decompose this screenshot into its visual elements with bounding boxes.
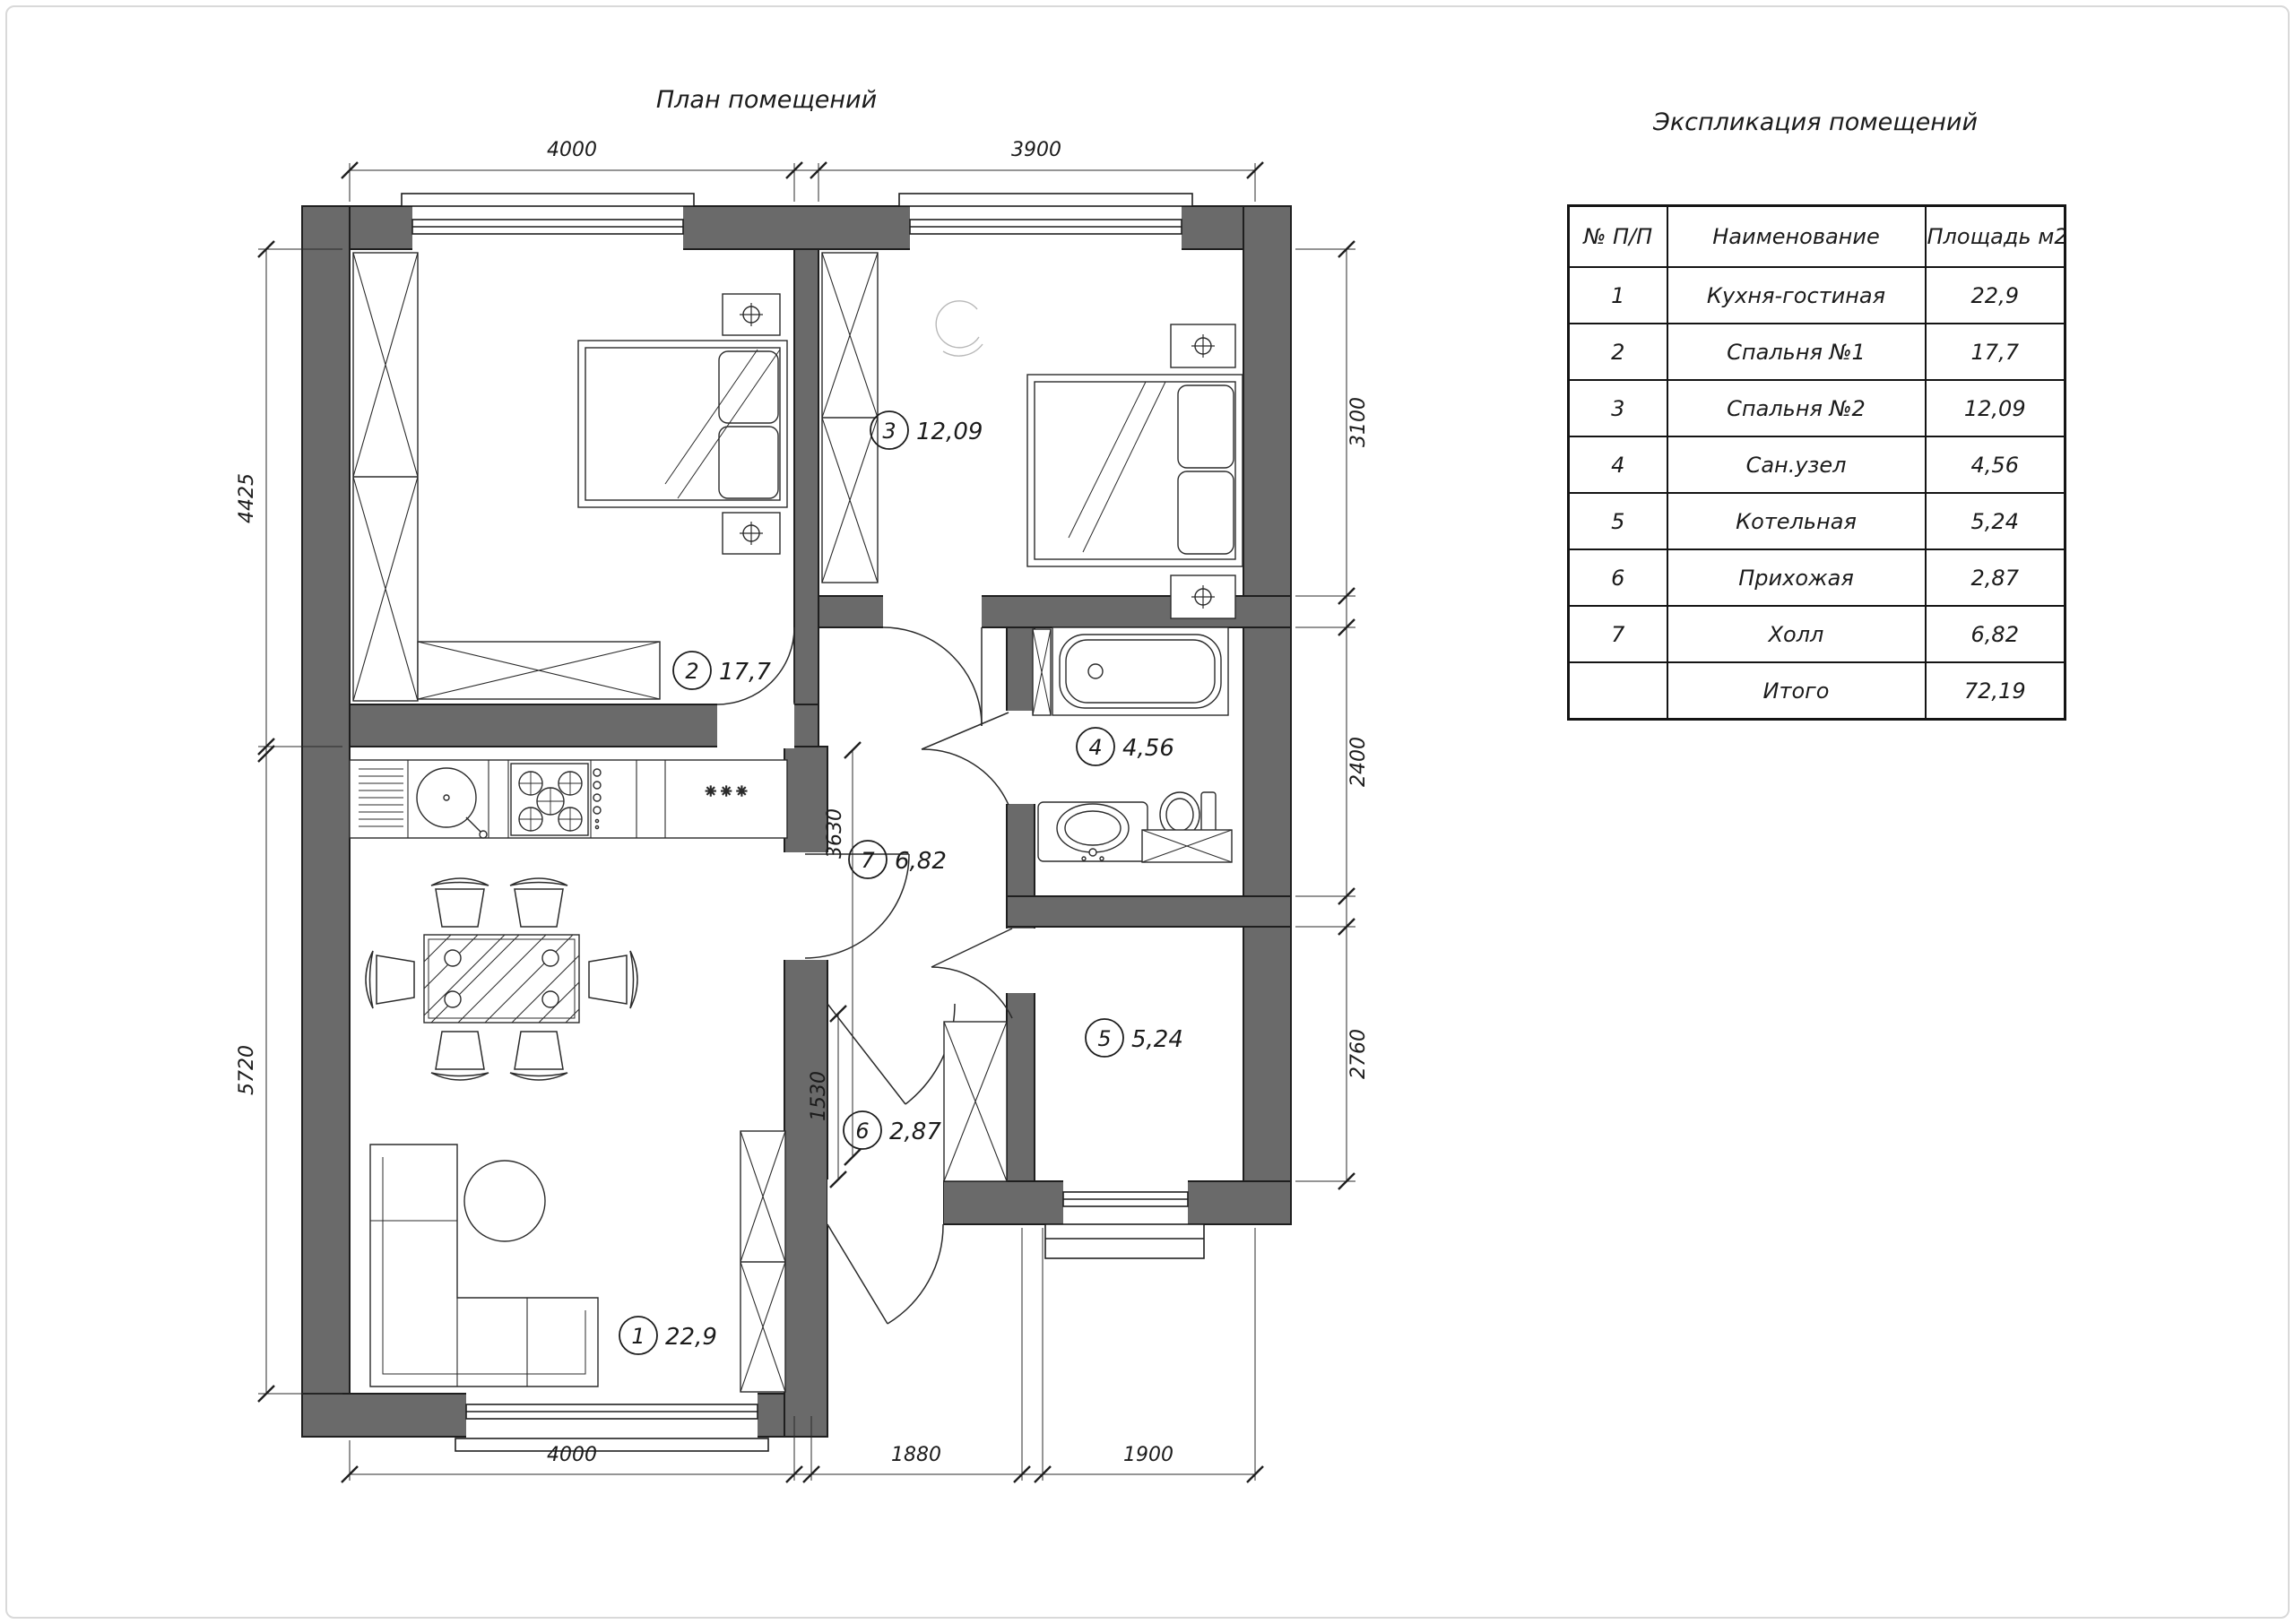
cell-name: Кухня-гостиная	[1667, 267, 1926, 324]
door-bathroom	[922, 713, 1009, 805]
cell-name: Итого	[1667, 662, 1926, 720]
cell-name: Сан.узел	[1667, 436, 1926, 493]
door-entrance	[827, 1224, 943, 1324]
cell-area: 12,09	[1926, 380, 2065, 436]
plan-title: План помещений	[656, 86, 877, 114]
room-area: 22,9	[665, 1324, 717, 1351]
kitchen-counter: ✳ ✳ ✳	[350, 760, 787, 838]
chair	[366, 951, 414, 1008]
room-number: 5	[1097, 1026, 1111, 1051]
cell-number: 6	[1569, 549, 1667, 606]
room-label-6: 6 2,87	[844, 1111, 941, 1149]
table-header-row: № П/П Наименование Площадь м2	[1569, 206, 2065, 268]
room-label-7: 7 6,82	[849, 841, 947, 878]
cell-number: 2	[1569, 324, 1667, 380]
dim-label: 3900	[1011, 139, 1061, 161]
room-label-3: 3 12,09	[870, 411, 983, 449]
dim-label: 1880	[891, 1444, 941, 1466]
room-number: 1	[631, 1324, 645, 1349]
room-area: 12,09	[916, 419, 983, 445]
floor-plan-sheet: План помещений Экспликация помещений	[0, 0, 2295, 1624]
dim-inner-hall	[844, 742, 861, 1165]
living-wardrobe	[740, 1131, 785, 1392]
room-label-1: 1 22,9	[619, 1317, 717, 1354]
wardrobe	[944, 1022, 1007, 1181]
dresser	[418, 642, 660, 699]
door-boiler	[931, 929, 1012, 1018]
chair	[510, 1032, 567, 1080]
window-boiler	[1063, 1192, 1188, 1206]
wall-right	[1243, 206, 1291, 1224]
washing-area-mat	[1142, 830, 1232, 862]
dim-label: 2760	[1347, 1029, 1370, 1079]
cell-name: Спальня №1	[1667, 324, 1926, 380]
bedroom1-furniture	[353, 253, 787, 701]
dim-label: 4425	[236, 473, 258, 523]
room-label-5: 5 5,24	[1086, 1019, 1183, 1057]
table-row: 6 Прихожая 2,87	[1569, 549, 2065, 606]
stove	[511, 764, 601, 835]
table-row: 1 Кухня-гостиная 22,9	[1569, 267, 2065, 324]
cell-area: 6,82	[1926, 606, 2065, 662]
wall-left	[302, 206, 350, 1437]
chair	[510, 878, 567, 927]
room-number: 4	[1088, 735, 1102, 760]
room-number: 3	[882, 419, 896, 444]
dim-label: 5720	[236, 1045, 258, 1095]
bed	[578, 341, 787, 507]
table-row: 3 Спальня №2 12,09	[1569, 380, 2065, 436]
cell-area: 17,7	[1926, 324, 2065, 380]
cell-name: Спальня №2	[1667, 380, 1926, 436]
porch-step	[1045, 1224, 1204, 1258]
dim-inner-entry	[830, 1006, 846, 1188]
dim-label: 4000	[547, 139, 597, 161]
bathtub	[1052, 627, 1228, 715]
col-header-name: Наименование	[1667, 206, 1926, 268]
wardrobe	[353, 253, 418, 701]
room-number: 7	[861, 848, 875, 873]
cell-name: Котельная	[1667, 493, 1926, 549]
dim-label: 3100	[1347, 397, 1370, 447]
explication-title: Экспликация помещений	[1652, 108, 1978, 136]
room-area: 17,7	[719, 659, 771, 686]
cell-area: 2,87	[1926, 549, 2065, 606]
dining-table	[424, 935, 579, 1023]
wardrobe	[822, 253, 878, 583]
room-number: 6	[855, 1119, 869, 1144]
room-area: 5,24	[1131, 1026, 1183, 1053]
cell-number: 3	[1569, 380, 1667, 436]
dim-label: 3630	[824, 808, 846, 859]
freezer-symbol: ✳ ✳ ✳	[705, 783, 747, 799]
col-header-area: Площадь м2	[1926, 206, 2065, 268]
entry-furniture	[944, 1022, 1007, 1181]
explication-table: № П/П Наименование Площадь м2 1 Кухня-го…	[1567, 204, 2064, 721]
table-row: 2 Спальня №1 17,7	[1569, 324, 2065, 380]
ceiling-light-icon	[936, 301, 983, 356]
chair	[431, 878, 489, 927]
dim-label: 1900	[1123, 1444, 1173, 1466]
cell-number: 1	[1569, 267, 1667, 324]
cell-name: Прихожая	[1667, 549, 1926, 606]
cell-number: 7	[1569, 606, 1667, 662]
wall-hall-left-top	[784, 747, 827, 854]
washbasin	[1038, 802, 1147, 861]
dim-right	[1295, 241, 1355, 1189]
cell-area: 4,56	[1926, 436, 2065, 493]
room-label-4: 4 4,56	[1077, 728, 1174, 765]
door-bedroom2	[883, 627, 982, 726]
coffee-table	[464, 1161, 545, 1241]
chair	[431, 1032, 489, 1080]
wall-bath-bottom	[1007, 896, 1291, 927]
dim-label: 4000	[547, 1444, 597, 1466]
cell-area: 72,19	[1926, 662, 2065, 720]
kitchen-living-furniture: ✳ ✳ ✳	[350, 760, 787, 1392]
wall-hall-left-bottom	[784, 958, 827, 1437]
cell-area: 22,9	[1926, 267, 2065, 324]
cell-number: 4	[1569, 436, 1667, 493]
table-row-total: Итого 72,19	[1569, 662, 2065, 720]
room-area: 4,56	[1122, 735, 1174, 762]
room-number: 2	[685, 659, 698, 684]
room-area: 6,82	[895, 848, 947, 875]
table-row: 4 Сан.узел 4,56	[1569, 436, 2065, 493]
bath-cabinet	[1033, 629, 1051, 715]
dim-label: 2400	[1347, 737, 1370, 787]
chair	[589, 951, 637, 1008]
table-row: 5 Котельная 5,24	[1569, 493, 2065, 549]
table-row: 7 Холл 6,82	[1569, 606, 2065, 662]
col-header-number: № П/П	[1569, 206, 1667, 268]
cell-number	[1569, 662, 1667, 720]
cell-name: Холл	[1667, 606, 1926, 662]
bed	[1027, 375, 1243, 566]
door-hall-entryroom	[827, 1004, 955, 1104]
room-area: 2,87	[889, 1119, 941, 1145]
cell-area: 5,24	[1926, 493, 2065, 549]
wall-bedrooms-divider	[794, 249, 818, 704]
dim-label: 1530	[808, 1071, 830, 1121]
cell-number: 5	[1569, 493, 1667, 549]
room-label-2: 2 17,7	[673, 652, 771, 689]
